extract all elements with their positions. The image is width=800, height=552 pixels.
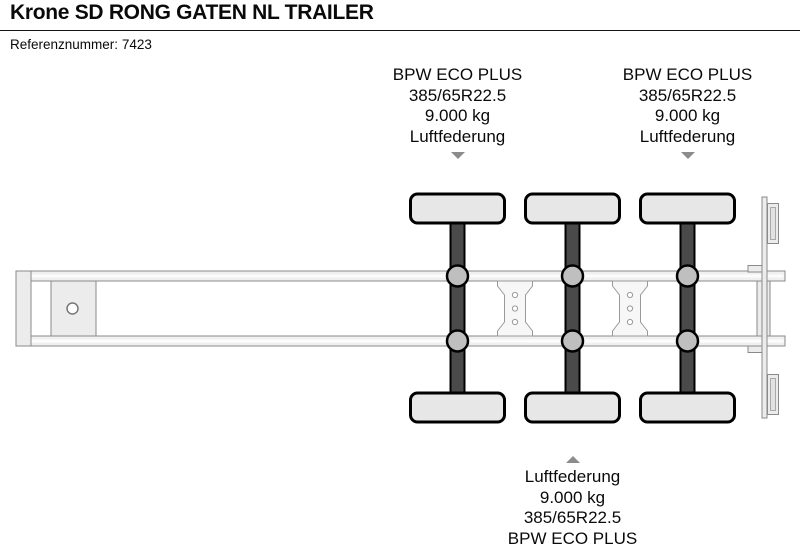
axle-2 xyxy=(566,209,580,407)
chassis-rail-bottom-highlight xyxy=(18,340,784,343)
kingpin xyxy=(67,303,78,314)
wheel-axle2-left xyxy=(526,194,620,223)
crossmember-hole xyxy=(627,319,632,324)
crossmember-hole xyxy=(627,292,632,297)
rear-mount-tab-top xyxy=(748,266,762,273)
hub-axle3-left xyxy=(677,266,698,287)
crossmember-hole xyxy=(512,292,517,297)
hub-axle1-left xyxy=(447,266,468,287)
crossmember-hole xyxy=(627,306,632,311)
wheel-axle2-right xyxy=(526,393,620,422)
wheel-axle3-left xyxy=(641,194,735,223)
crossmember-hole xyxy=(512,319,517,324)
wheel-axle1-right xyxy=(411,393,505,422)
crossmember-hole xyxy=(512,306,517,311)
trailer-diagram xyxy=(0,0,800,552)
axle-1 xyxy=(451,209,465,407)
wheel-axle3-right xyxy=(641,393,735,422)
front-bulkhead xyxy=(16,271,31,346)
rear-lamp-bottom-inner xyxy=(771,379,776,411)
rear-lamp-top-inner xyxy=(771,208,776,240)
rear-mount-tab-bottom xyxy=(748,346,762,353)
trailer-listing-image: Krone SD RONG GATEN NL TRAILER Referenzn… xyxy=(0,0,800,552)
hub-axle1-right xyxy=(447,331,468,352)
rear-underride-bar xyxy=(762,197,767,418)
wheel-axle1-left xyxy=(411,194,505,223)
hub-axle3-right xyxy=(677,331,698,352)
chassis-rail-top-highlight xyxy=(18,275,784,278)
hub-axle2-left xyxy=(562,266,583,287)
axle-3 xyxy=(681,209,695,407)
hub-axle2-right xyxy=(562,331,583,352)
